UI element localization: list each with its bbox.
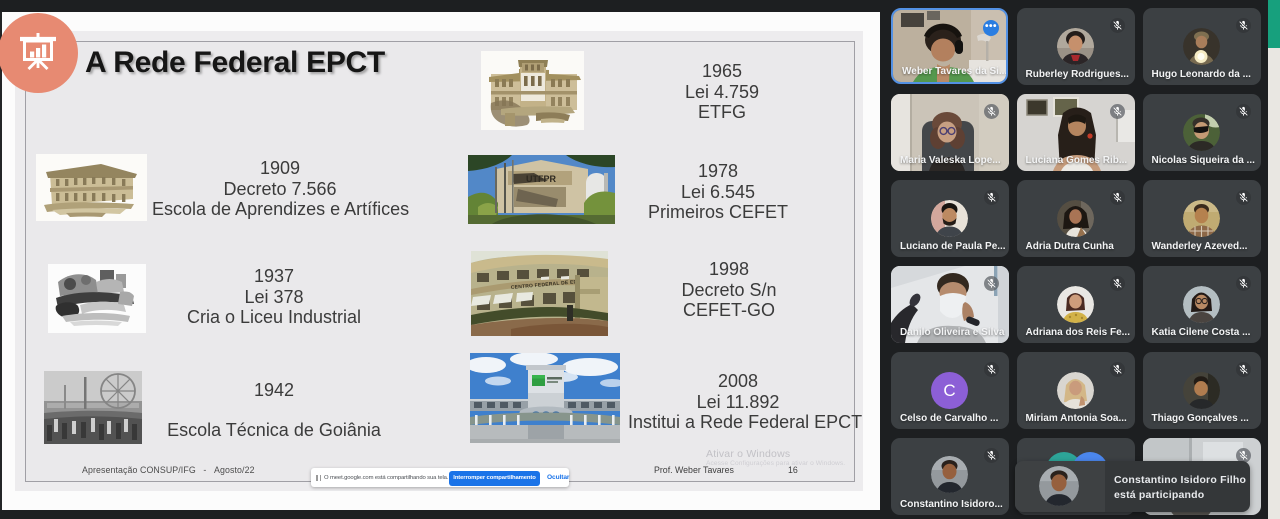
svg-text:UTFPR: UTFPR: [526, 174, 556, 184]
